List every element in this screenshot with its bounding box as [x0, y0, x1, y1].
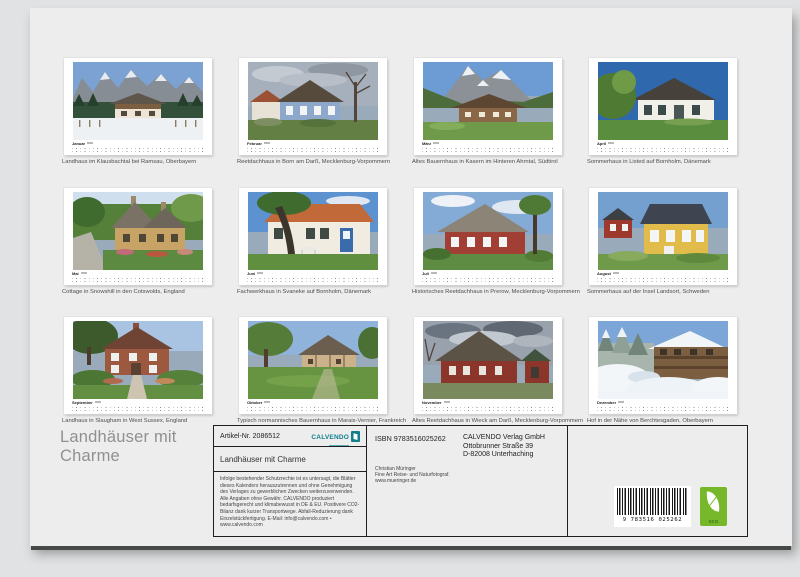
isbn-barcode: 9 783516 025262 — [614, 486, 691, 527]
mini-day-row — [597, 148, 729, 149]
thumb-caption: Altes Bauernhaus in Kasern im Hinteren A… — [412, 159, 584, 166]
mini-calendar-strip: September — [72, 401, 204, 411]
mini-calendar-strip: August — [597, 272, 729, 282]
thumb-caption: Hof in der Nähe von Berchtesgaden, Oberb… — [587, 418, 759, 425]
month-label: Januar — [72, 142, 204, 147]
mini-day-row — [422, 151, 554, 152]
photo-january — [73, 62, 203, 140]
month-label: Juni — [247, 272, 379, 277]
mini-day-row — [597, 281, 729, 282]
calendar-title: Landhäuser mit Charme — [60, 428, 212, 465]
calvendo-mark-icon — [351, 431, 360, 442]
mini-day-row — [597, 151, 729, 152]
mini-day-row — [422, 410, 554, 411]
publisher-city: D-82008 Unterhaching — [463, 451, 545, 460]
thumb-caption: Reetdachhaus in Born am Darß, Mecklenbur… — [237, 159, 409, 166]
info-column-publisher: ISBN 9783516025262 CALVENDO Verlag GmbH … — [367, 426, 568, 536]
isbn-number: ISBN 9783516025262 — [375, 434, 446, 443]
photo-june — [248, 192, 378, 270]
photo-may — [73, 192, 203, 270]
eco-label: eco — [700, 519, 727, 525]
legal-text: Infolge bestehender Schutzrechte ist es … — [214, 472, 366, 536]
barcode-bars-icon — [617, 488, 688, 515]
photo-july — [423, 192, 553, 270]
thumb-caption: Sommerhaus in Listed auf Bornholm, Dänem… — [587, 159, 759, 166]
thumb-caption: Landhaus im Klausbachtal bei Ramsau, Obe… — [62, 159, 234, 166]
month-label: August — [597, 272, 729, 277]
calendar-thumb-april: April — [589, 58, 737, 155]
article-number: Artikel-Nr. 2086512 — [220, 433, 280, 440]
mini-day-row — [72, 407, 204, 408]
mini-calendar-strip: Juni — [247, 272, 379, 282]
mini-calendar-strip: April — [597, 142, 729, 152]
mini-day-row — [247, 410, 379, 411]
thumb-caption: Historisches Reetdachhaus in Prerow, Mec… — [412, 289, 584, 296]
product-title: Landhäuser mit Charme — [214, 447, 366, 472]
month-label: März — [422, 142, 554, 147]
photo-september — [73, 321, 203, 399]
calvendo-logo: CALVENDO — [311, 426, 360, 446]
barcode-digits: 9 783516 025262 — [617, 517, 688, 523]
thumb-caption: Cottage in Snowshill in den Cotswolds, E… — [62, 289, 234, 296]
mini-day-row — [72, 278, 204, 279]
photo-march — [423, 62, 553, 140]
mini-calendar-strip: Juli — [422, 272, 554, 282]
leaf-icon — [705, 491, 721, 511]
publisher-address: CALVENDO Verlag GmbH Ottobrunner Straße … — [463, 434, 545, 460]
mini-day-row — [597, 410, 729, 411]
mini-day-row — [422, 148, 554, 149]
photographer-website: www.mueringer.de — [375, 478, 450, 484]
mini-calendar-strip: Oktober — [247, 401, 379, 411]
mini-day-row — [597, 278, 729, 279]
eco-badge: eco — [700, 487, 727, 526]
mini-day-row — [247, 151, 379, 152]
publisher-name: CALVENDO Verlag GmbH — [463, 434, 545, 443]
photo-february — [248, 62, 378, 140]
thumb-caption: Altes Reetdachhaus in Wieck am Darß, Mec… — [412, 418, 584, 425]
photo-december — [598, 321, 728, 399]
thumb-caption: Typisch normannisches Bauernhaus in Mara… — [237, 418, 409, 425]
month-label: Februar — [247, 142, 379, 147]
calvendo-tagline — [329, 445, 349, 446]
mini-day-row — [72, 281, 204, 282]
info-column-barcode: 9 783516 025262 eco — [568, 426, 747, 536]
mini-day-row — [247, 407, 379, 408]
photo-october — [248, 321, 378, 399]
mini-calendar-strip: März — [422, 142, 554, 152]
calendar-thumb-february: Februar — [239, 58, 387, 155]
mini-calendar-strip: Januar — [72, 142, 204, 152]
calendar-thumb-september: September — [64, 317, 212, 414]
month-label: November — [422, 401, 554, 406]
calendar-thumb-july: Juli — [414, 188, 562, 285]
mini-day-row — [72, 148, 204, 149]
mini-day-row — [422, 278, 554, 279]
mini-calendar-strip: Mai — [72, 272, 204, 282]
photo-april — [598, 62, 728, 140]
publisher-street: Ottobrunner Straße 39 — [463, 443, 545, 452]
calvendo-wordmark: CALVENDO — [311, 434, 349, 441]
photo-august — [598, 192, 728, 270]
mini-day-row — [422, 407, 554, 408]
mini-day-row — [422, 281, 554, 282]
month-label: Dezember — [597, 401, 729, 406]
mini-day-row — [72, 410, 204, 411]
calendar-thumb-december: Dezember — [589, 317, 737, 414]
month-label: Oktober — [247, 401, 379, 406]
calendar-thumb-march: März — [414, 58, 562, 155]
info-column-product: Artikel-Nr. 2086512 CALVENDO Landhäuser … — [214, 426, 367, 536]
photo-november — [423, 321, 553, 399]
mini-day-row — [247, 278, 379, 279]
month-label: April — [597, 142, 729, 147]
month-label: September — [72, 401, 204, 406]
calendar-thumb-october: Oktober — [239, 317, 387, 414]
month-label: Mai — [72, 272, 204, 277]
thumb-caption: Sommerhaus auf der Insel Landsort, Schwe… — [587, 289, 759, 296]
mini-calendar-strip: Februar — [247, 142, 379, 152]
calendar-thumb-november: November — [414, 317, 562, 414]
mini-day-row — [247, 148, 379, 149]
mini-calendar-strip: November — [422, 401, 554, 411]
publisher-info-box: Artikel-Nr. 2086512 CALVENDO Landhäuser … — [213, 425, 748, 537]
thumb-caption: Fachwerkhaus in Svaneke auf Bornholm, Dä… — [237, 289, 409, 296]
calendar-thumb-june: Juni — [239, 188, 387, 285]
calendar-thumb-january: Januar — [64, 58, 212, 155]
mini-calendar-strip: Dezember — [597, 401, 729, 411]
calendar-thumb-may: Mai — [64, 188, 212, 285]
calendar-thumb-august: August — [589, 188, 737, 285]
thumb-caption: Landhaus in Slaugham in West Sussex, Eng… — [62, 418, 234, 425]
mini-day-row — [72, 151, 204, 152]
mini-day-row — [247, 281, 379, 282]
calendar-back-sheet: Januar Landhaus im Klausbachtal bei Rams… — [30, 8, 792, 546]
mini-day-row — [597, 407, 729, 408]
month-label: Juli — [422, 272, 554, 277]
photographer-credit: Christian Müringer Fine Art Reise- und N… — [375, 466, 450, 485]
